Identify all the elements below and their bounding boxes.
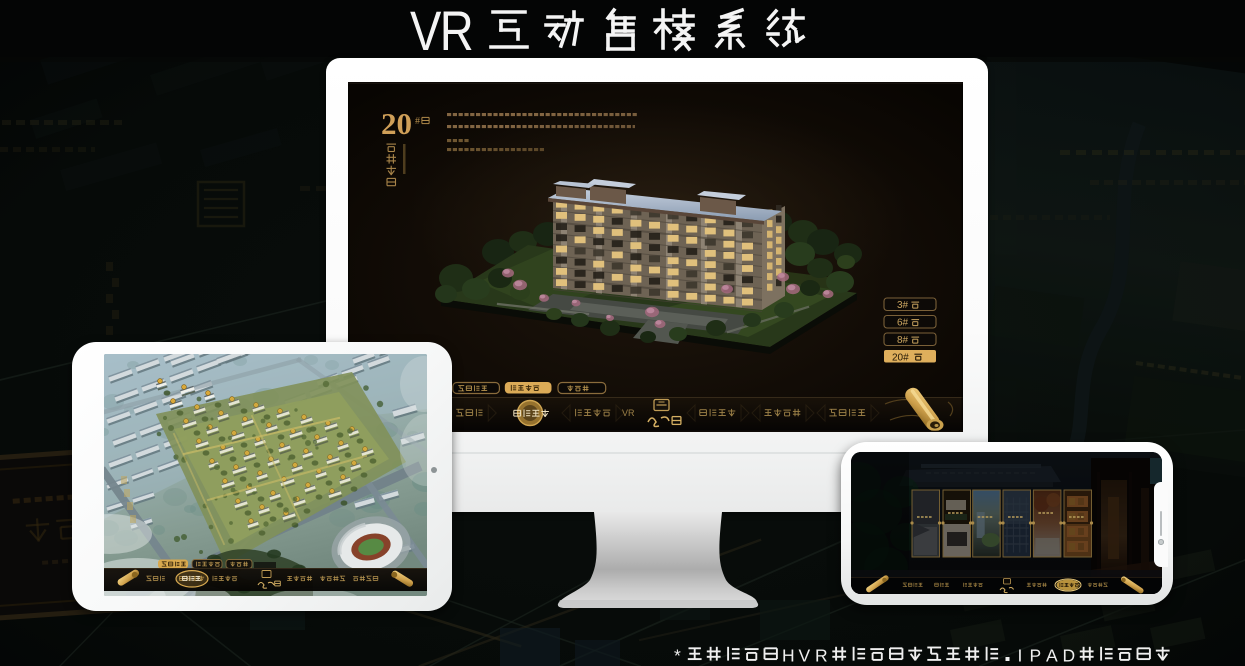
svg-text:3#: 3# <box>897 300 909 311</box>
svg-text:R: R <box>815 646 828 666</box>
svg-text:#: # <box>415 116 420 127</box>
svg-text:H: H <box>782 646 795 666</box>
svg-text:20: 20 <box>381 106 412 141</box>
svg-text:D: D <box>1063 646 1076 666</box>
svg-text:V: V <box>799 646 811 666</box>
svg-text:8#: 8# <box>897 335 909 346</box>
svg-text:A: A <box>1046 646 1058 666</box>
svg-text:I: I <box>1018 646 1023 666</box>
svg-text:6#: 6# <box>897 318 909 329</box>
svg-text:*: * <box>674 646 681 666</box>
svg-text:P: P <box>1030 646 1042 666</box>
svg-text:VR: VR <box>622 408 635 418</box>
svg-text:VR: VR <box>410 0 472 58</box>
svg-text:20#: 20# <box>892 353 909 364</box>
